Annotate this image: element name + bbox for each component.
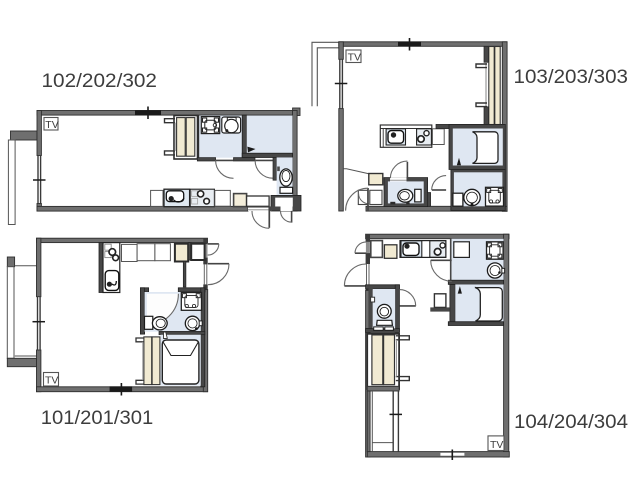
svg-text:TV: TV bbox=[45, 375, 58, 387]
svg-text:TV: TV bbox=[348, 52, 361, 64]
svg-text:103/203/303: 103/203/303 bbox=[514, 67, 629, 88]
svg-text:101/201/301: 101/201/301 bbox=[41, 408, 154, 429]
svg-text:TV: TV bbox=[490, 439, 503, 451]
svg-text:TV: TV bbox=[45, 119, 58, 131]
svg-text:102/202/302: 102/202/302 bbox=[42, 71, 158, 92]
svg-text:104/204/304: 104/204/304 bbox=[514, 412, 628, 433]
